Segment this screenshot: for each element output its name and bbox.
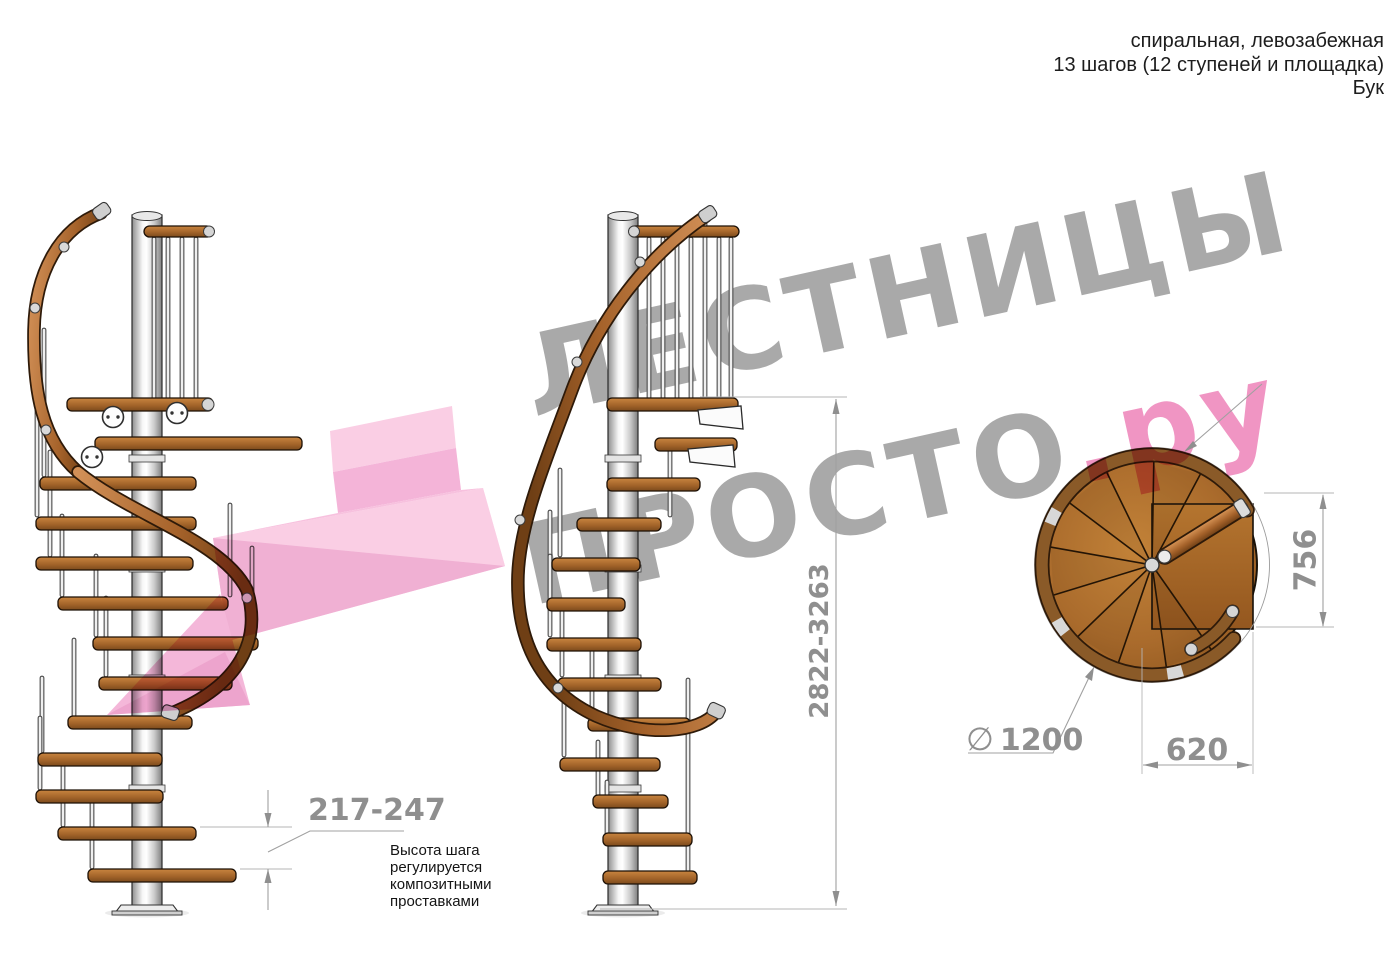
diameter-icon: ∅ <box>966 720 994 758</box>
dim-total-height-label: 2822-3263 <box>805 563 835 719</box>
title-type: спиральная, левозабежная <box>1053 30 1384 54</box>
dimension-lines <box>0 0 1400 961</box>
dim-756-label: 756 <box>1289 529 1324 592</box>
title-material: Бук <box>1053 77 1384 101</box>
drawing-sheet: ЛЕСТНИЦЫ ПРОСТО.ру <box>0 0 1400 961</box>
title-steps: 13 шагов (12 ступеней и площадка) <box>1053 54 1384 78</box>
title-block: спиральная, левозабежная 13 шагов (12 ст… <box>1053 30 1384 101</box>
plan-top-leader <box>1184 384 1262 452</box>
dim-step-height-label: 217-247 <box>308 793 446 828</box>
step-height-note: Высота шага регулируется композитными пр… <box>390 842 492 910</box>
dim-diameter-label: ∅1200 <box>966 720 1083 758</box>
dim-620-label: 620 <box>1166 733 1229 768</box>
